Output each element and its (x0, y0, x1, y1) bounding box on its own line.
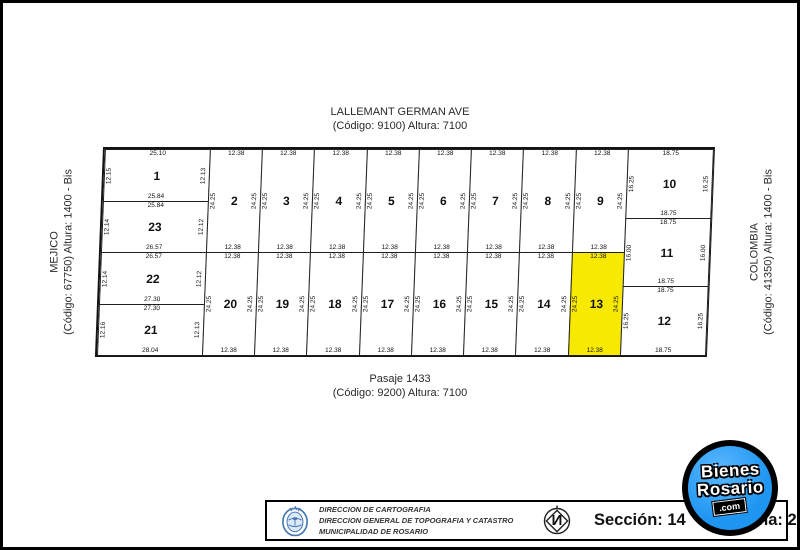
lot-22: 2226.5727.3012.1412.12 (99, 252, 207, 305)
lot-number: 15 (485, 297, 499, 311)
measure-right: 24.25 (460, 193, 467, 209)
lot-number: 5 (388, 194, 395, 208)
measure-top: 12.38 (416, 254, 467, 261)
lot-5: 512.3812.3824.2524.25 (363, 149, 420, 253)
lot-14: 1412.3812.3824.2524.25 (515, 252, 573, 356)
lot-21: 2127.3028.0412.1612.13 (97, 304, 205, 356)
measure-bottom: 12.38 (569, 348, 620, 355)
lot-number: 12 (657, 314, 671, 328)
measure-left: 24.25 (471, 193, 478, 209)
measure-left: 24.25 (310, 296, 317, 312)
measure-top: 12.38 (468, 254, 519, 261)
measure-left: 24.25 (210, 193, 217, 209)
street-top-detail: (Código: 9100) Altura: 7100 (0, 119, 800, 133)
lot-number: 6 (440, 194, 447, 208)
lot-number: 20 (224, 297, 238, 311)
street-top: LALLEMANT GERMAN AVE (Código: 9100) Altu… (0, 105, 800, 134)
credit-line-2: DIRECCION GENERAL DE TOPOGRAFIA Y CATAST… (319, 515, 514, 526)
measure-top: 18.75 (623, 288, 707, 295)
measure-bottom: 27.30 (100, 297, 204, 304)
measure-top: 12.38 (311, 254, 363, 261)
lot-number: 8 (544, 194, 551, 208)
lot-8: 812.3812.3824.2524.25 (519, 149, 577, 253)
north-letter: N (552, 512, 563, 529)
measure-bottom: 12.38 (259, 245, 310, 252)
lot-number: 4 (335, 194, 342, 208)
measure-bottom: 18.75 (624, 279, 708, 286)
street-right: COLOMBIA (Código: 41350) Altura: 1400 - … (748, 169, 777, 335)
measure-right: 12.12 (196, 270, 203, 286)
measure-right: 24.25 (512, 193, 519, 209)
lot-number: 7 (492, 194, 499, 208)
lot-number: 21 (144, 323, 158, 337)
measure-top: 12.38 (207, 254, 258, 261)
measure-left: 24.25 (523, 193, 530, 209)
bienesrosario-logo: Bienes Rosario .com (682, 440, 778, 536)
measure-right: 24.25 (508, 296, 515, 312)
lot-18: 1812.3812.3824.2524.25 (306, 252, 364, 356)
municipal-crest-icon (281, 505, 309, 537)
measure-bottom: 12.38 (468, 245, 519, 252)
lot-number: 1 (153, 169, 160, 183)
measure-right: 24.25 (251, 193, 258, 209)
measure-right: 24.25 (299, 296, 306, 312)
measure-right: 24.25 (303, 193, 310, 209)
lot-number: 14 (537, 297, 551, 311)
measure-right: 24.25 (613, 296, 620, 312)
lot-number: 13 (590, 297, 604, 311)
measure-left: 12.14 (102, 270, 109, 286)
measure-left: 24.25 (519, 296, 526, 312)
measure-bottom: 12.38 (520, 245, 572, 252)
measure-top: 12.38 (263, 151, 314, 158)
measure-top: 12.38 (259, 254, 310, 261)
measure-right: 24.25 (456, 296, 463, 312)
measure-right: 16.00 (700, 244, 707, 260)
measure-bottom: 12.38 (203, 348, 254, 355)
measure-bottom: 26.57 (102, 245, 206, 252)
measure-left: 12.15 (106, 167, 113, 183)
measure-bottom: 25.84 (104, 194, 208, 201)
measure-top: 12.38 (524, 151, 576, 158)
lot-3: 312.3812.3824.2524.25 (258, 149, 315, 253)
measure-top: 12.38 (211, 151, 262, 158)
lot-6: 612.3812.3824.2524.25 (415, 149, 472, 253)
logo-line-2: Rosario (696, 478, 764, 499)
lot-number: 10 (663, 177, 677, 191)
lot-2: 212.3812.3824.2524.25 (206, 149, 263, 253)
lot-12: 1218.7518.7516.2516.25 (620, 286, 709, 356)
street-left-name: MEJICO (48, 169, 62, 335)
measure-left: 12.16 (100, 322, 107, 338)
lot-15: 1512.3812.3824.2524.25 (463, 252, 520, 356)
measure-top: 12.38 (420, 151, 471, 158)
seccion-value: Sección: 14 (594, 511, 686, 530)
measure-bottom: 12.38 (516, 348, 568, 355)
measure-left: 24.25 (314, 193, 321, 209)
measure-bottom: 12.38 (311, 245, 363, 252)
street-bottom-name: Pasaje 1433 (0, 372, 800, 386)
lot-number: 9 (597, 194, 604, 208)
street-left: MEJICO (Código: 67750) Altura: 1400 - Bi… (48, 169, 77, 335)
measure-right: 12.13 (200, 167, 207, 183)
measure-right: 24.25 (565, 193, 572, 209)
credit-line-1: DIRECCION DE CARTOGRAFIA (319, 504, 514, 515)
measure-top: 18.75 (626, 220, 710, 227)
measure-top: 25.10 (106, 151, 210, 158)
street-right-detail: (Código: 41350) Altura: 1400 - Bis (762, 169, 776, 335)
measure-bottom: 12.38 (416, 245, 467, 252)
lot-11: 1118.7518.7516.0016.00 (623, 218, 712, 287)
measure-top: 12.38 (364, 254, 415, 261)
measure-left: 24.25 (367, 193, 374, 209)
measure-top: 12.38 (520, 254, 572, 261)
lot-17: 1712.3812.3824.2524.25 (359, 252, 416, 356)
street-left-detail: (Código: 67750) Altura: 1400 - Bis (62, 169, 76, 335)
measure-left: 24.25 (572, 296, 579, 312)
measure-top: 18.75 (629, 151, 713, 158)
lot-1: 125.1025.8412.1512.13 (103, 149, 211, 202)
measure-right: 24.25 (561, 296, 568, 312)
measure-right: 16.25 (698, 313, 705, 329)
plan-block: 125.1025.8412.1512.132325.8426.5712.1412… (95, 147, 715, 357)
measure-bottom: 12.38 (412, 348, 463, 355)
measure-right: 24.25 (247, 296, 254, 312)
measure-right: 24.25 (408, 193, 415, 209)
street-bottom-detail: (Código: 9200) Altura: 7100 (0, 386, 800, 400)
cartography-credits: DIRECCION DE CARTOGRAFIA DIRECCION GENER… (319, 504, 514, 538)
lot-number: 17 (381, 297, 395, 311)
street-bottom: Pasaje 1433 (Código: 9200) Altura: 7100 (0, 372, 800, 401)
measure-left: 24.25 (415, 296, 422, 312)
measure-bottom: 28.04 (98, 348, 202, 355)
logo-com-badge: .com (713, 498, 747, 516)
measure-left: 24.25 (419, 193, 426, 209)
measure-top: 12.38 (573, 254, 624, 261)
lot-number: 16 (433, 297, 447, 311)
measure-top: 26.57 (102, 254, 206, 261)
lot-number: 23 (148, 220, 162, 234)
measure-left: 24.25 (262, 193, 269, 209)
lot-16: 1612.3812.3824.2524.25 (411, 252, 468, 356)
measure-right: 24.25 (404, 296, 411, 312)
lot-20: 2012.3812.3824.2524.25 (202, 252, 259, 356)
measure-top: 12.38 (472, 151, 523, 158)
measure-right: 12.12 (198, 219, 205, 235)
lot-number: 19 (276, 297, 290, 311)
street-right-name: COLOMBIA (748, 169, 762, 335)
lot-number: 11 (660, 246, 673, 260)
credit-line-3: MUNICIPALIDAD DE ROSARIO (319, 526, 514, 537)
measure-right: 24.25 (617, 193, 624, 209)
measure-bottom: 12.38 (360, 348, 411, 355)
lot-10: 1018.7518.7516.2516.25 (625, 149, 714, 219)
lot-7: 712.3812.3824.2524.25 (467, 149, 524, 253)
lot-number: 3 (283, 194, 290, 208)
measure-right: 16.25 (703, 176, 710, 192)
lot-23: 2325.8426.5712.1412.12 (101, 201, 209, 253)
measure-bottom: 12.38 (364, 245, 415, 252)
measure-right: 12.13 (194, 322, 201, 338)
measure-bottom: 18.75 (621, 348, 705, 355)
street-top-name: LALLEMANT GERMAN AVE (0, 105, 800, 119)
north-arrow-icon: N (540, 504, 574, 538)
measure-right: 24.25 (356, 193, 363, 209)
measure-top: 12.38 (577, 151, 628, 158)
measure-left: 24.25 (258, 296, 265, 312)
measure-left: 24.25 (206, 296, 213, 312)
measure-top: 12.38 (315, 151, 367, 158)
measure-right: 24.25 (352, 296, 359, 312)
lot-9: 912.3812.3824.2524.25 (572, 149, 629, 253)
measure-left: 24.25 (363, 296, 370, 312)
lot-13: 1312.3812.3824.2524.25 (568, 252, 625, 356)
lot-number: 18 (328, 297, 342, 311)
measure-left: 12.14 (104, 219, 111, 235)
measure-bottom: 12.38 (307, 348, 359, 355)
measure-top: 25.84 (104, 203, 208, 210)
measure-top: 27.30 (100, 306, 204, 313)
lot-4: 412.3812.3824.2524.25 (310, 149, 368, 253)
measure-left: 16.00 (626, 244, 633, 260)
lot-19: 1912.3812.3824.2524.25 (254, 252, 311, 356)
measure-bottom: 12.38 (207, 245, 258, 252)
measure-left: 16.25 (624, 313, 631, 329)
measure-left: 24.25 (576, 193, 583, 209)
measure-left: 24.25 (467, 296, 474, 312)
lot-number: 2 (231, 194, 238, 208)
measure-bottom: 18.75 (626, 211, 710, 218)
lot-number: 22 (146, 272, 160, 286)
measure-bottom: 12.38 (255, 348, 306, 355)
measure-left: 16.25 (629, 176, 636, 192)
measure-top: 12.38 (368, 151, 419, 158)
measure-bottom: 12.38 (464, 348, 515, 355)
measure-bottom: 12.38 (573, 245, 624, 252)
